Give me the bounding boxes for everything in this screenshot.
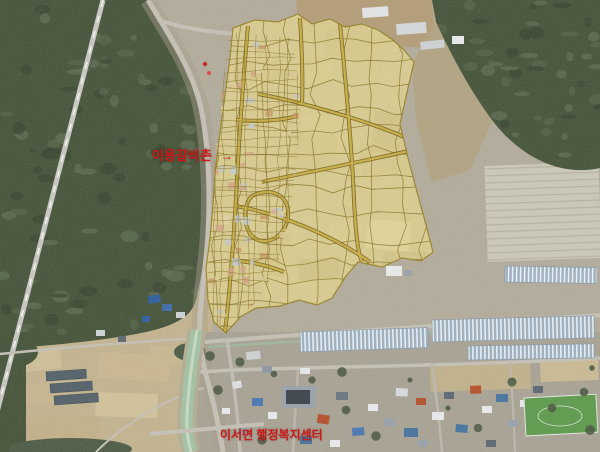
map-label-admin-center: 이서면 행정복지센터 <box>220 429 323 441</box>
satellite-imagery <box>0 0 600 452</box>
aerial-map-viewport[interactable]: 이용갈비촌→ 이서면 행정복지센터 <box>0 0 600 452</box>
map-label-text: 이용갈비촌 <box>152 148 212 163</box>
map-label-galbi-village: 이용갈비촌→ <box>152 149 233 162</box>
map-label-text: 이서면 행정복지센터 <box>220 428 323 442</box>
arrow-right-icon: → <box>221 149 233 163</box>
